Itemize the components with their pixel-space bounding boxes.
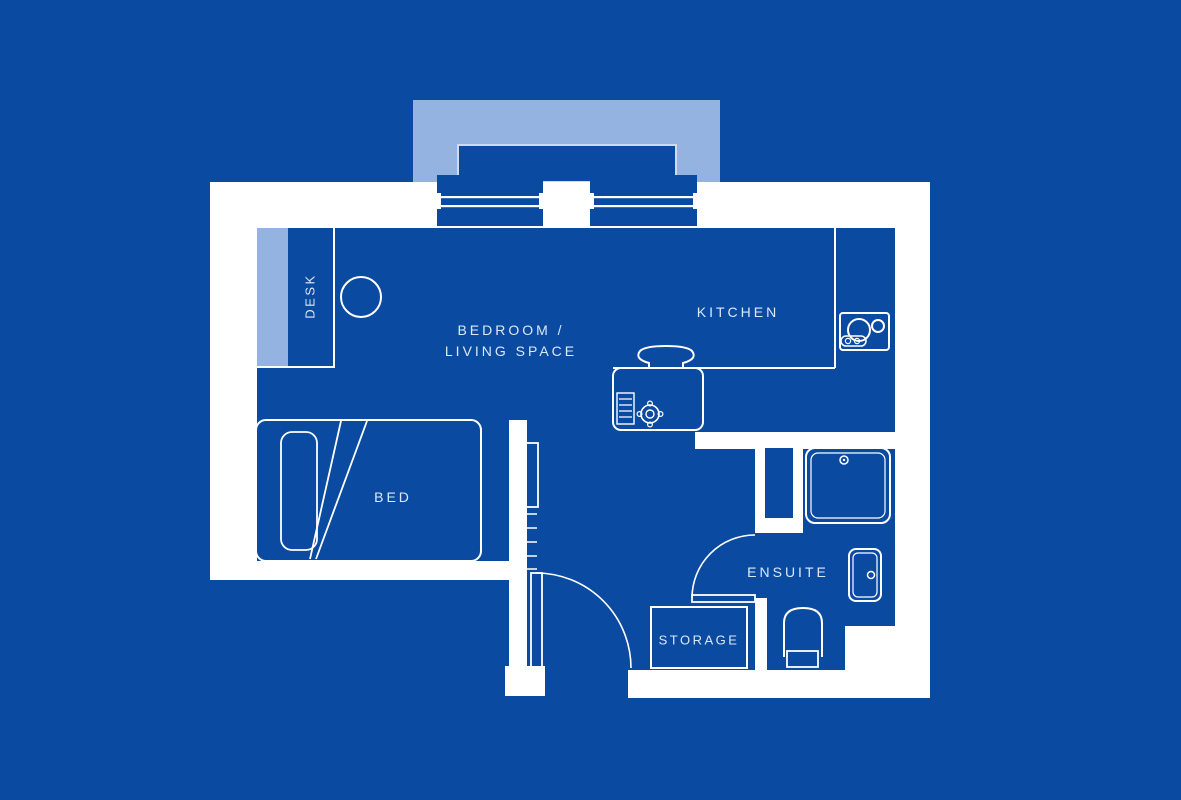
kitchen-sink-icon xyxy=(613,346,703,430)
drainer-icon xyxy=(617,393,634,424)
duvet-fold-icon xyxy=(310,421,367,559)
hob-icon xyxy=(840,313,889,350)
bed-icon xyxy=(256,420,481,561)
entry-door-icon xyxy=(531,573,631,668)
desk-chair-icon xyxy=(341,277,381,317)
window-icon xyxy=(590,175,697,226)
room-label-kitchen: KITCHEN xyxy=(697,304,779,320)
floorplan-canvas: BEDROOM / LIVING SPACE KITCHEN BED DESK … xyxy=(0,0,1181,800)
room-label-storage: STORAGE xyxy=(659,633,740,648)
toilet-icon xyxy=(784,608,822,667)
tap-icon xyxy=(638,346,693,368)
bedroom-label-line1: BEDROOM / xyxy=(445,320,577,341)
room-label-ensuite: ENSUITE xyxy=(747,564,829,580)
fixture-label-bed: BED xyxy=(374,489,412,505)
radiator-icon xyxy=(526,443,538,569)
pillow-icon xyxy=(281,432,317,550)
wash-basin-icon xyxy=(849,549,881,601)
ensuite-door-icon xyxy=(692,535,755,602)
fixture-label-desk: DESK xyxy=(303,273,318,318)
room-label-bedroom-living: BEDROOM / LIVING SPACE xyxy=(445,320,577,362)
fixtures-layer xyxy=(0,0,1181,800)
bedroom-label-line2: LIVING SPACE xyxy=(445,341,577,362)
window-icon xyxy=(437,175,543,226)
shower-tray-icon xyxy=(806,448,890,523)
